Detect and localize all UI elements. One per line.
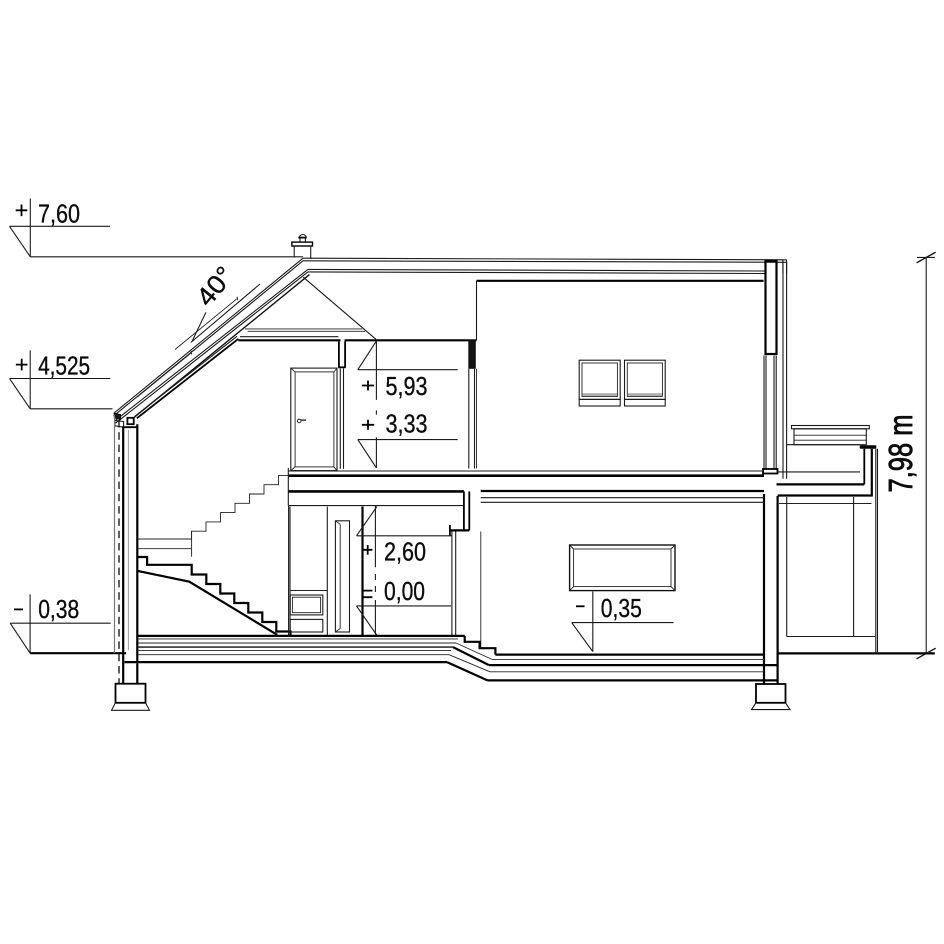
svg-text:5,93: 5,93: [386, 371, 428, 401]
svg-text:3,33: 3,33: [386, 408, 428, 438]
svg-text:4,525: 4,525: [38, 350, 90, 380]
svg-text:0,35: 0,35: [601, 593, 642, 623]
svg-text:0,00: 0,00: [384, 576, 425, 606]
svg-text:7,60: 7,60: [38, 199, 80, 229]
svg-text:7,98 m: 7,98 m: [882, 415, 919, 493]
svg-text:0,38: 0,38: [38, 594, 79, 624]
svg-text:2,60: 2,60: [384, 536, 426, 566]
